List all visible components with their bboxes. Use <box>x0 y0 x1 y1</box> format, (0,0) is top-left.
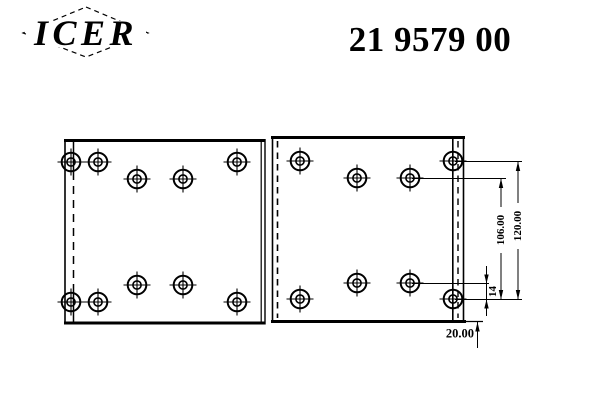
rivet-hole <box>85 289 112 316</box>
dimension-120-label: 120.00 <box>512 210 524 241</box>
arrowhead-down <box>516 290 520 300</box>
rivet-holes <box>58 148 467 316</box>
rivet-hole <box>58 289 85 316</box>
dimension-20: 20.00 <box>446 322 480 348</box>
rivet-hole <box>124 272 151 299</box>
rivet-hole <box>124 166 151 193</box>
brake-lining-drawing: 120.00 106.00 14 20.00 <box>0 0 600 400</box>
arrowhead-down <box>499 290 503 300</box>
technical-drawing-page: ICER 21 9579 00 <box>0 0 600 400</box>
dimension-106: 106.00 <box>495 179 507 300</box>
left-plate <box>64 139 266 325</box>
dimension-120: 120.00 <box>512 162 524 300</box>
rivet-hole <box>344 270 371 297</box>
rivet-hole <box>58 149 85 176</box>
dimension-20-label: 20.00 <box>446 327 474 341</box>
rivet-hole <box>287 148 314 175</box>
arrowhead-up <box>475 322 479 332</box>
dimension-14: 14 <box>484 266 499 316</box>
arrowhead-up <box>516 162 520 172</box>
rivet-hole <box>224 289 251 316</box>
rivet-hole <box>344 165 371 192</box>
dimension-106-label: 106.00 <box>495 214 507 245</box>
rivet-hole <box>224 149 251 176</box>
rivet-hole <box>85 149 112 176</box>
arrowhead-down <box>484 275 488 284</box>
arrowhead-up <box>499 179 503 189</box>
rivet-hole <box>170 166 197 193</box>
dimension-14-label: 14 <box>487 286 499 298</box>
rivet-hole <box>170 272 197 299</box>
rivet-hole <box>287 286 314 313</box>
arrowhead-up <box>484 300 488 309</box>
